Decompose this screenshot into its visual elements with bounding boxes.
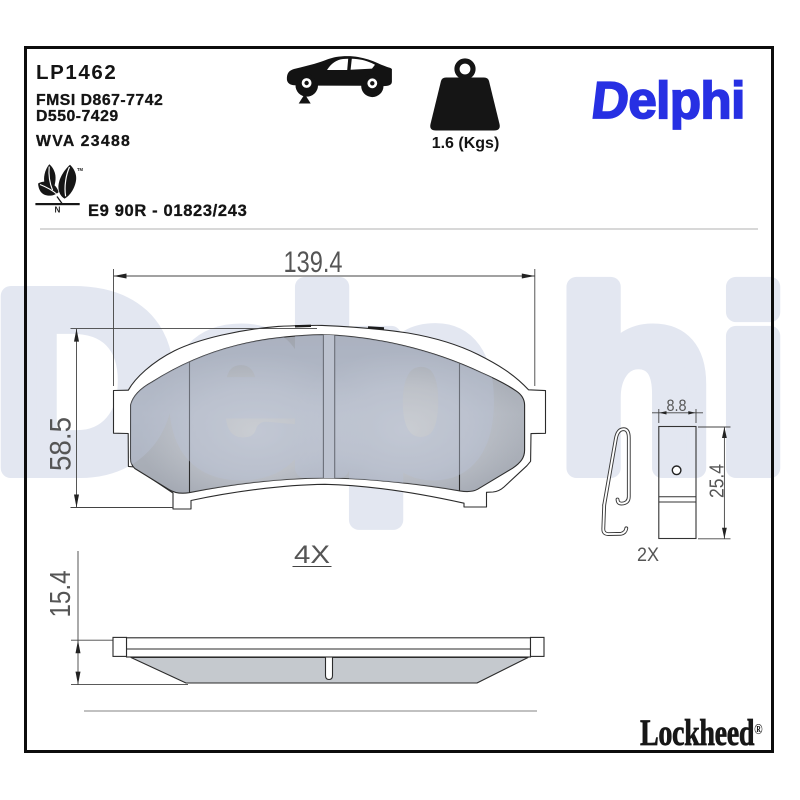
svg-text:TM: TM	[77, 167, 84, 172]
svg-text:N: N	[55, 206, 61, 215]
